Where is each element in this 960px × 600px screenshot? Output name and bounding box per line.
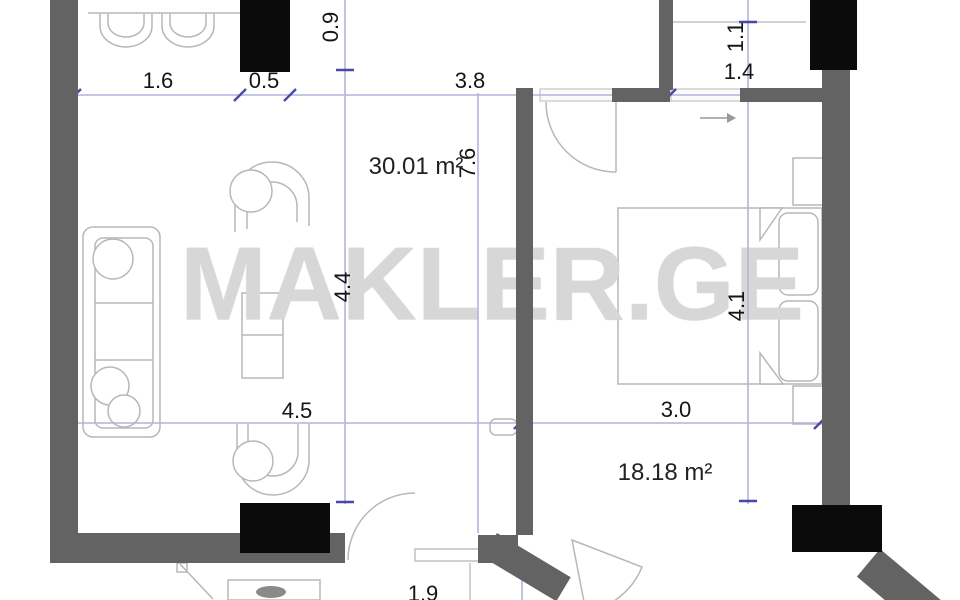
dim-label-4-5: 4.5 — [282, 398, 313, 424]
wall-right — [822, 66, 850, 506]
window-block-bottom-right — [792, 505, 882, 552]
dim-label-4-1: 4.1 — [724, 291, 750, 322]
dim-label-3-8: 3.8 — [455, 68, 486, 94]
wall-top-a — [612, 88, 670, 102]
dim-label-1-6: 1.6 — [143, 68, 174, 94]
wall-left — [50, 0, 78, 563]
dim-label-1-4: 1.4 — [724, 59, 755, 85]
floor-plan: MAKLER.GE — [0, 0, 960, 600]
dim-label-3-0: 3.0 — [661, 397, 692, 423]
wall-top-vertical — [659, 0, 673, 90]
living-room-area-label: 30.01 m² — [369, 153, 464, 181]
dim-label-0-5: 0.5 — [249, 68, 280, 94]
wall-middle-vertical — [516, 88, 533, 535]
window-block-bottom-left — [240, 503, 330, 553]
dim-label-4-4: 4.4 — [330, 272, 356, 303]
bedroom-area-label: 18.18 m² — [618, 459, 713, 487]
window-block-top-left — [240, 0, 290, 72]
dim-label-0-9: 0.9 — [318, 12, 344, 43]
dim-label-1-1: 1.1 — [723, 22, 749, 53]
window-block-top-right — [810, 0, 857, 70]
dim-label-1-9: 1.9 — [408, 581, 439, 600]
dimension-ticks — [64, 22, 826, 576]
wall-top-b — [740, 88, 824, 102]
